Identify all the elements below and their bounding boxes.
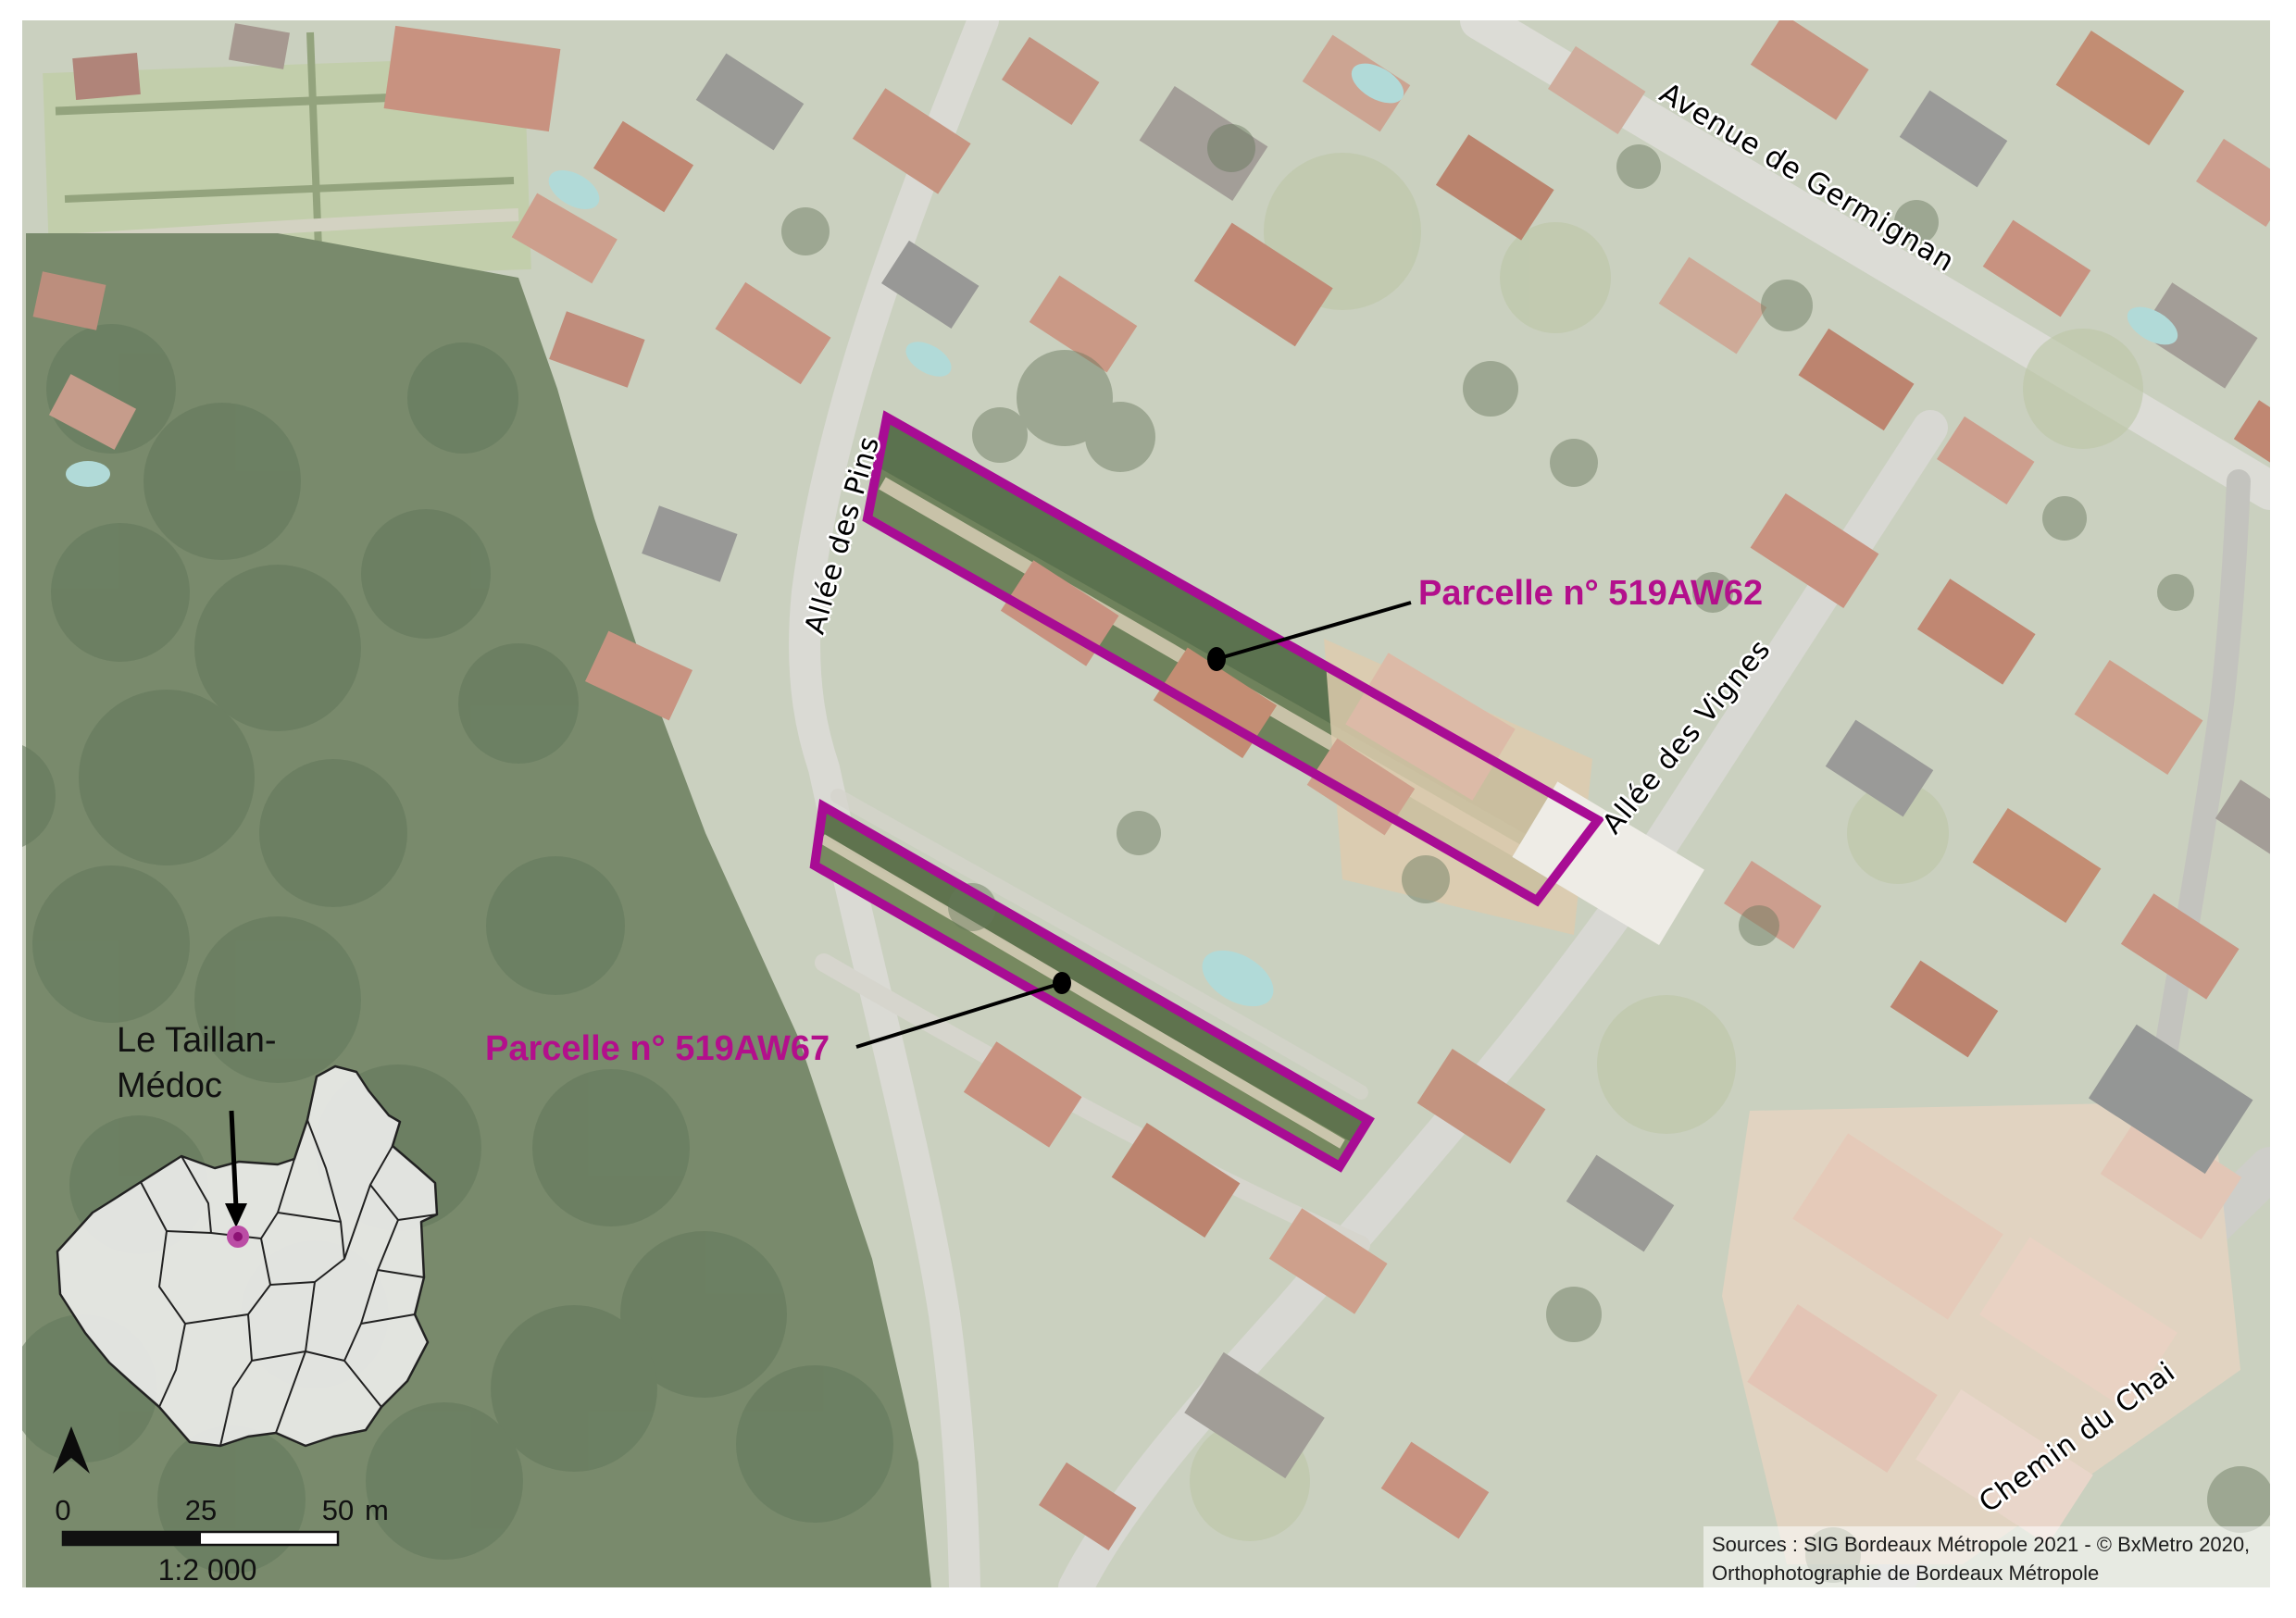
inset-commune-name-line1: Le Taillan- (117, 1018, 277, 1064)
scale-tick-25: 25 (185, 1494, 217, 1527)
parcel-519AW62-label: Parcelle n° 519AW62 (1418, 574, 1763, 614)
inset-commune-name: Le Taillan- Médoc (117, 1018, 277, 1109)
attribution-line1: Sources : SIG Bordeaux Métropole 2021 - … (1712, 1530, 2250, 1559)
attribution-line2: Orthophotographie de Bordeaux Métropole (1712, 1559, 2250, 1587)
scale-tick-0: 0 (55, 1494, 70, 1527)
map-page: Avenue de Germignan Allée des Pins Allée… (0, 0, 2296, 1618)
scale-tick-50: 50 (322, 1494, 354, 1527)
scale-ratio: 1:2 000 (158, 1553, 257, 1587)
inset-commune-name-line2: Médoc (117, 1064, 277, 1109)
scale-unit: m (365, 1494, 389, 1527)
parcel-519AW67-label: Parcelle n° 519AW67 (485, 1029, 830, 1069)
attribution-text: Sources : SIG Bordeaux Métropole 2021 - … (1712, 1530, 2250, 1587)
